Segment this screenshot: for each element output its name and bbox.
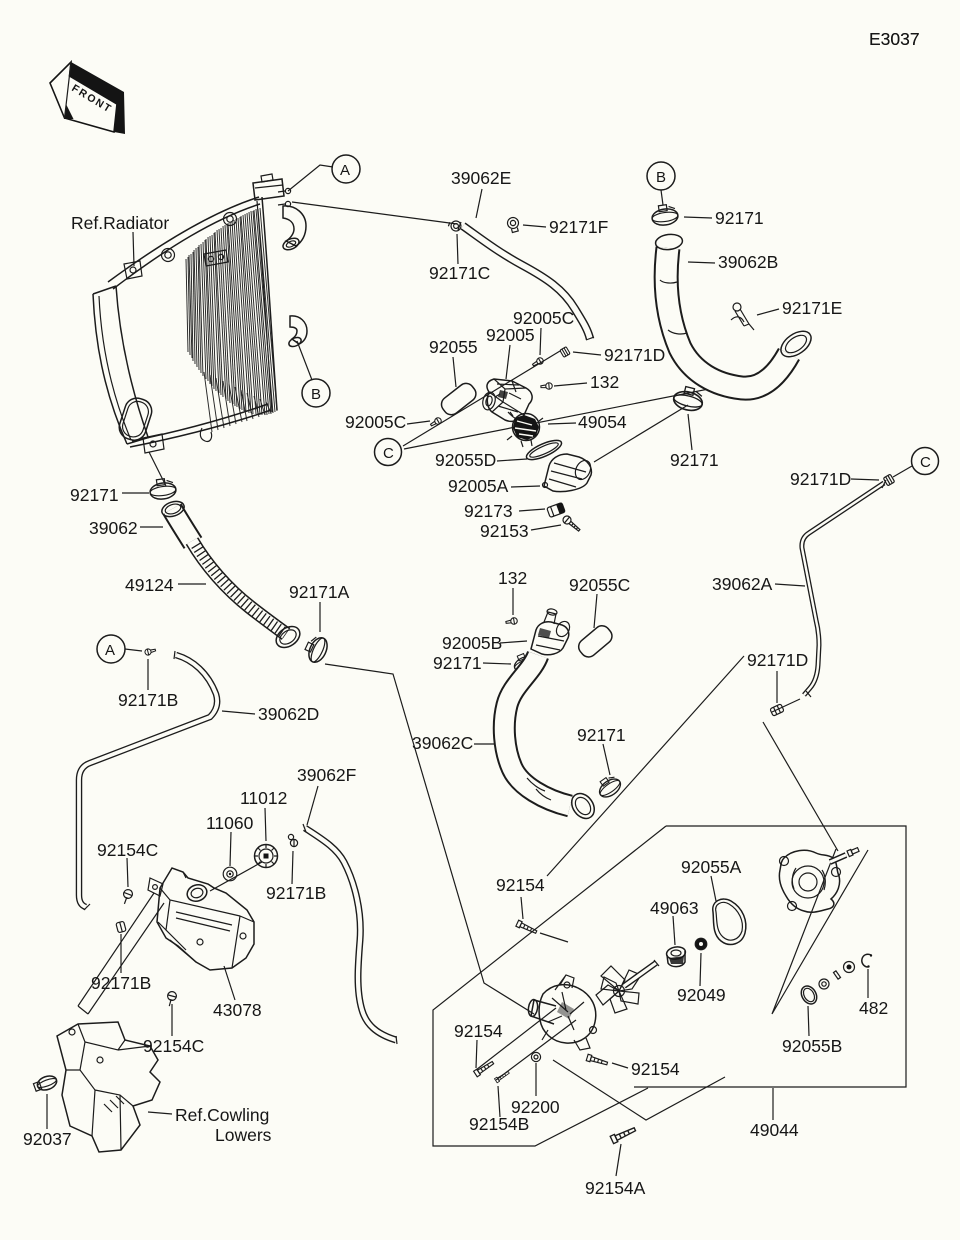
svg-text:92055B: 92055B xyxy=(782,1036,842,1056)
svg-text:11012: 11012 xyxy=(240,788,287,808)
svg-text:92173: 92173 xyxy=(464,501,513,521)
svg-text:92171B: 92171B xyxy=(91,973,151,993)
svg-text:92153: 92153 xyxy=(480,521,529,541)
svg-text:92171: 92171 xyxy=(577,725,626,745)
svg-text:92037: 92037 xyxy=(23,1129,72,1149)
svg-text:92171: 92171 xyxy=(70,485,119,505)
svg-text:92171D: 92171D xyxy=(604,345,665,365)
svg-text:92171D: 92171D xyxy=(747,650,808,670)
svg-text:92171F: 92171F xyxy=(549,217,608,237)
svg-text:B: B xyxy=(311,386,321,403)
svg-text:43078: 43078 xyxy=(213,1000,262,1020)
svg-text:49063: 49063 xyxy=(650,898,699,918)
svg-text:39062D: 39062D xyxy=(258,704,319,724)
svg-text:92055C: 92055C xyxy=(569,575,630,595)
svg-text:92154: 92154 xyxy=(631,1059,680,1079)
svg-text:92154C: 92154C xyxy=(97,840,158,860)
svg-text:C: C xyxy=(383,445,394,462)
svg-text:92171D: 92171D xyxy=(790,469,851,489)
svg-text:92154C: 92154C xyxy=(143,1036,204,1056)
svg-text:92005C: 92005C xyxy=(345,412,406,432)
svg-text:49044: 49044 xyxy=(750,1120,799,1140)
svg-text:A: A xyxy=(105,642,115,659)
svg-text:E3037: E3037 xyxy=(869,29,920,49)
svg-text:92055: 92055 xyxy=(429,337,478,357)
svg-text:92055A: 92055A xyxy=(681,857,742,877)
svg-text:92005: 92005 xyxy=(486,325,535,345)
svg-text:11060: 11060 xyxy=(206,813,254,833)
svg-text:92005B: 92005B xyxy=(442,633,502,653)
svg-text:B: B xyxy=(656,169,666,186)
svg-text:92005A: 92005A xyxy=(448,476,509,496)
svg-text:92049: 92049 xyxy=(677,985,726,1005)
svg-text:39062F: 39062F xyxy=(297,765,356,785)
svg-text:92171: 92171 xyxy=(715,208,764,228)
svg-text:39062B: 39062B xyxy=(718,252,778,272)
svg-text:39062A: 39062A xyxy=(712,574,773,594)
svg-text:92171: 92171 xyxy=(433,653,482,673)
svg-text:92171: 92171 xyxy=(670,450,719,470)
svg-text:Ref.Radiator: Ref.Radiator xyxy=(71,213,169,233)
svg-text:92171A: 92171A xyxy=(289,582,350,602)
svg-text:92171B: 92171B xyxy=(118,690,178,710)
svg-text:39062: 39062 xyxy=(89,518,138,538)
svg-text:39062E: 39062E xyxy=(451,168,511,188)
svg-text:92171C: 92171C xyxy=(429,263,490,283)
svg-text:49124: 49124 xyxy=(125,575,174,595)
svg-text:92154: 92154 xyxy=(496,875,545,895)
svg-text:92055D: 92055D xyxy=(435,450,496,470)
svg-text:Lowers: Lowers xyxy=(215,1125,272,1145)
svg-text:Ref.Cowling: Ref.Cowling xyxy=(175,1105,269,1125)
svg-text:39062C: 39062C xyxy=(412,733,473,753)
svg-text:132: 132 xyxy=(590,372,619,392)
svg-text:482: 482 xyxy=(859,998,888,1018)
svg-text:49054: 49054 xyxy=(578,412,627,432)
svg-text:92171B: 92171B xyxy=(266,883,326,903)
svg-text:132: 132 xyxy=(498,568,527,588)
svg-text:92154: 92154 xyxy=(454,1021,503,1041)
svg-text:92154A: 92154A xyxy=(585,1178,646,1198)
svg-text:A: A xyxy=(340,162,350,179)
svg-text:92171E: 92171E xyxy=(782,298,842,318)
svg-text:C: C xyxy=(920,454,931,471)
svg-text:92154B: 92154B xyxy=(469,1114,529,1134)
